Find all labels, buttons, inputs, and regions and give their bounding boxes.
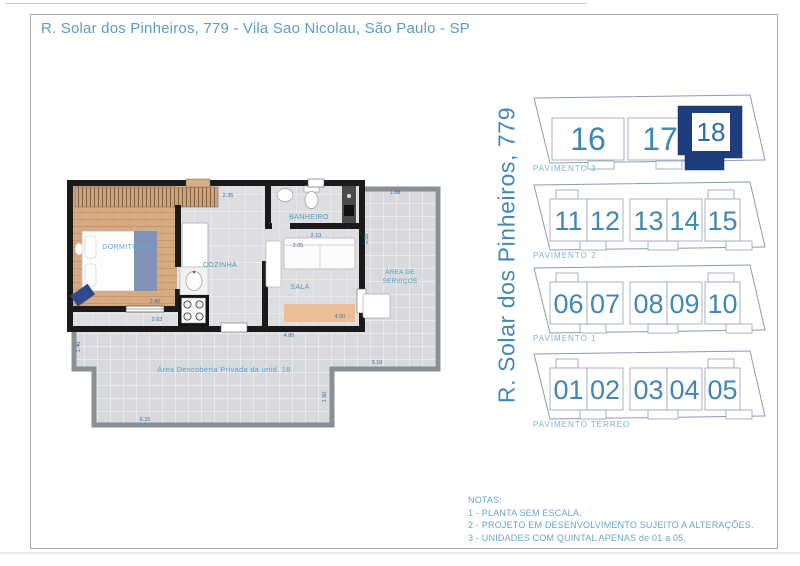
- dimension-label: 2.40: [150, 299, 161, 305]
- dimension-label: 2.13: [311, 233, 322, 239]
- outdoor-area-label: Área Descoberta Privada da unid. 18: [157, 365, 291, 374]
- unit-number: 17: [642, 121, 678, 157]
- unit-number: 13: [633, 206, 663, 236]
- floor-diagram: 0607080910PAVIMENTO 1: [528, 262, 778, 350]
- unit-number: 18: [697, 117, 726, 147]
- shower-base: [344, 205, 354, 216]
- room-label-servicos-2: SERVIÇOS: [383, 278, 418, 285]
- floor-label: PAVIMENTO 2: [533, 251, 596, 260]
- unit-step-notch: [648, 324, 678, 333]
- unit-step-notch: [726, 324, 752, 333]
- dimension-label: 4.85: [284, 333, 295, 339]
- unit-step-notch: [726, 241, 752, 250]
- pillow: [85, 264, 96, 286]
- unit-number: 08: [633, 289, 663, 319]
- headboard-slats: [75, 187, 218, 207]
- unit-step-notch: [556, 359, 578, 368]
- unit-number: 07: [590, 289, 620, 319]
- unit-step-notch: [556, 273, 578, 282]
- room-label-dormitorio: DORMITÓRIO: [102, 242, 152, 251]
- pillow: [85, 236, 96, 258]
- unit-number: 06: [553, 289, 583, 319]
- room-label-sala: SALA: [290, 284, 310, 291]
- shower-stall: [342, 186, 356, 223]
- dimension-label: 3.55: [364, 234, 370, 245]
- shower-head: [347, 194, 351, 198]
- kitchen-sink: [186, 272, 202, 291]
- notes-block: NOTAS: 1 - PLANTA SEM ESCALA. 2 - PROJET…: [468, 494, 774, 544]
- notes-heading: NOTAS:: [468, 494, 774, 507]
- faucet: [193, 271, 196, 274]
- street-title-vertical: R. Solar dos Pinheiros, 779: [494, 107, 521, 403]
- terrace-door-gap: [221, 323, 247, 332]
- unit-step-notch: [656, 161, 682, 169]
- dimension-label: 1.50: [322, 392, 328, 403]
- dimension-label: 6.15: [140, 417, 151, 423]
- unit-step-notch: [580, 241, 606, 250]
- unit-number: 02: [590, 375, 620, 405]
- dimension-label: 1.40: [76, 342, 82, 353]
- building-stack: 161718PAVIMENTO 31112131415PAVIMENTO 206…: [528, 0, 778, 566]
- floor-label: PAVIMENTO 1: [533, 334, 596, 343]
- room-label-banheiro: BANHEIRO: [289, 214, 329, 221]
- floorplan-drawing: DORMITÓRIO COZINHA BANHEIRO SALA ÁREA DE…: [58, 177, 458, 439]
- note-line: 3 - UNIDADES COM QUINTAL APENAS de 01 a …: [468, 532, 774, 545]
- unit-step-notch: [648, 241, 678, 250]
- unit-number: 15: [707, 206, 737, 236]
- unit-number: 14: [669, 206, 699, 236]
- unit-step-notch: [580, 410, 606, 419]
- bathroom-door-gap: [272, 223, 290, 229]
- bathroom-left-wall: [265, 183, 271, 229]
- floor-diagram: 1112131415PAVIMENTO 2: [528, 179, 778, 267]
- dimension-label: 1.88: [390, 190, 401, 196]
- unit-number: 05: [707, 375, 737, 405]
- unit-number: 16: [570, 121, 606, 157]
- dorm-kitchen-wall: [175, 205, 181, 267]
- unit-step-notch: [708, 273, 734, 282]
- dimension-label: 3.10: [372, 360, 383, 366]
- tv-unit: [266, 241, 281, 287]
- top-door: [186, 179, 210, 187]
- toilet-bowl: [305, 192, 318, 209]
- fridge: [182, 223, 208, 267]
- nightstand: [75, 243, 83, 255]
- dimension-label: 2.63: [152, 317, 163, 323]
- room-label-cozinha: COZINHA: [203, 262, 237, 269]
- blanket: [134, 231, 157, 291]
- unit-number: 09: [669, 289, 699, 319]
- unit-step-notch: [708, 359, 734, 368]
- unit-step-notch: [556, 190, 578, 199]
- bathroom-sink: [277, 189, 293, 202]
- room-label-servicos-1: ÁREA DE: [385, 267, 414, 276]
- unit-step-notch: [580, 324, 606, 333]
- unit-number: 03: [633, 375, 663, 405]
- unit-step-notch: [726, 410, 752, 419]
- floor-label: PAVIMENTO TÉRREO: [533, 420, 630, 429]
- page-top-edge: [6, 3, 586, 4]
- dimension-label: 2.35: [223, 193, 234, 199]
- unit-number: 12: [590, 206, 620, 236]
- floor-diagram: 0102030405PAVIMENTO TÉRREO: [528, 348, 778, 436]
- floor-label: PAVIMENTO 3: [533, 164, 596, 173]
- floor-diagram: 161718PAVIMENTO 3: [528, 92, 778, 180]
- unit-number: 10: [707, 289, 737, 319]
- unit-step-notch: [708, 190, 734, 199]
- unit-step-notch: [648, 410, 678, 419]
- note-line: 1 - PLANTA SEM ESCALA.: [468, 507, 774, 520]
- page-title: R. Solar dos Pinheiros, 779 - Vila Sao N…: [41, 20, 470, 37]
- unit-number: 01: [553, 375, 583, 405]
- unit-number: 11: [554, 206, 582, 236]
- note-line: 2 - PROJETO EM DESENVOLVIMENTO SUJEITO A…: [468, 519, 774, 532]
- dimension-label: 2.05: [293, 243, 304, 249]
- unit-number: 04: [669, 375, 699, 405]
- bathroom-window: [308, 179, 324, 187]
- laundry-tub: [363, 294, 390, 318]
- dimension-label: 4.50: [335, 314, 346, 320]
